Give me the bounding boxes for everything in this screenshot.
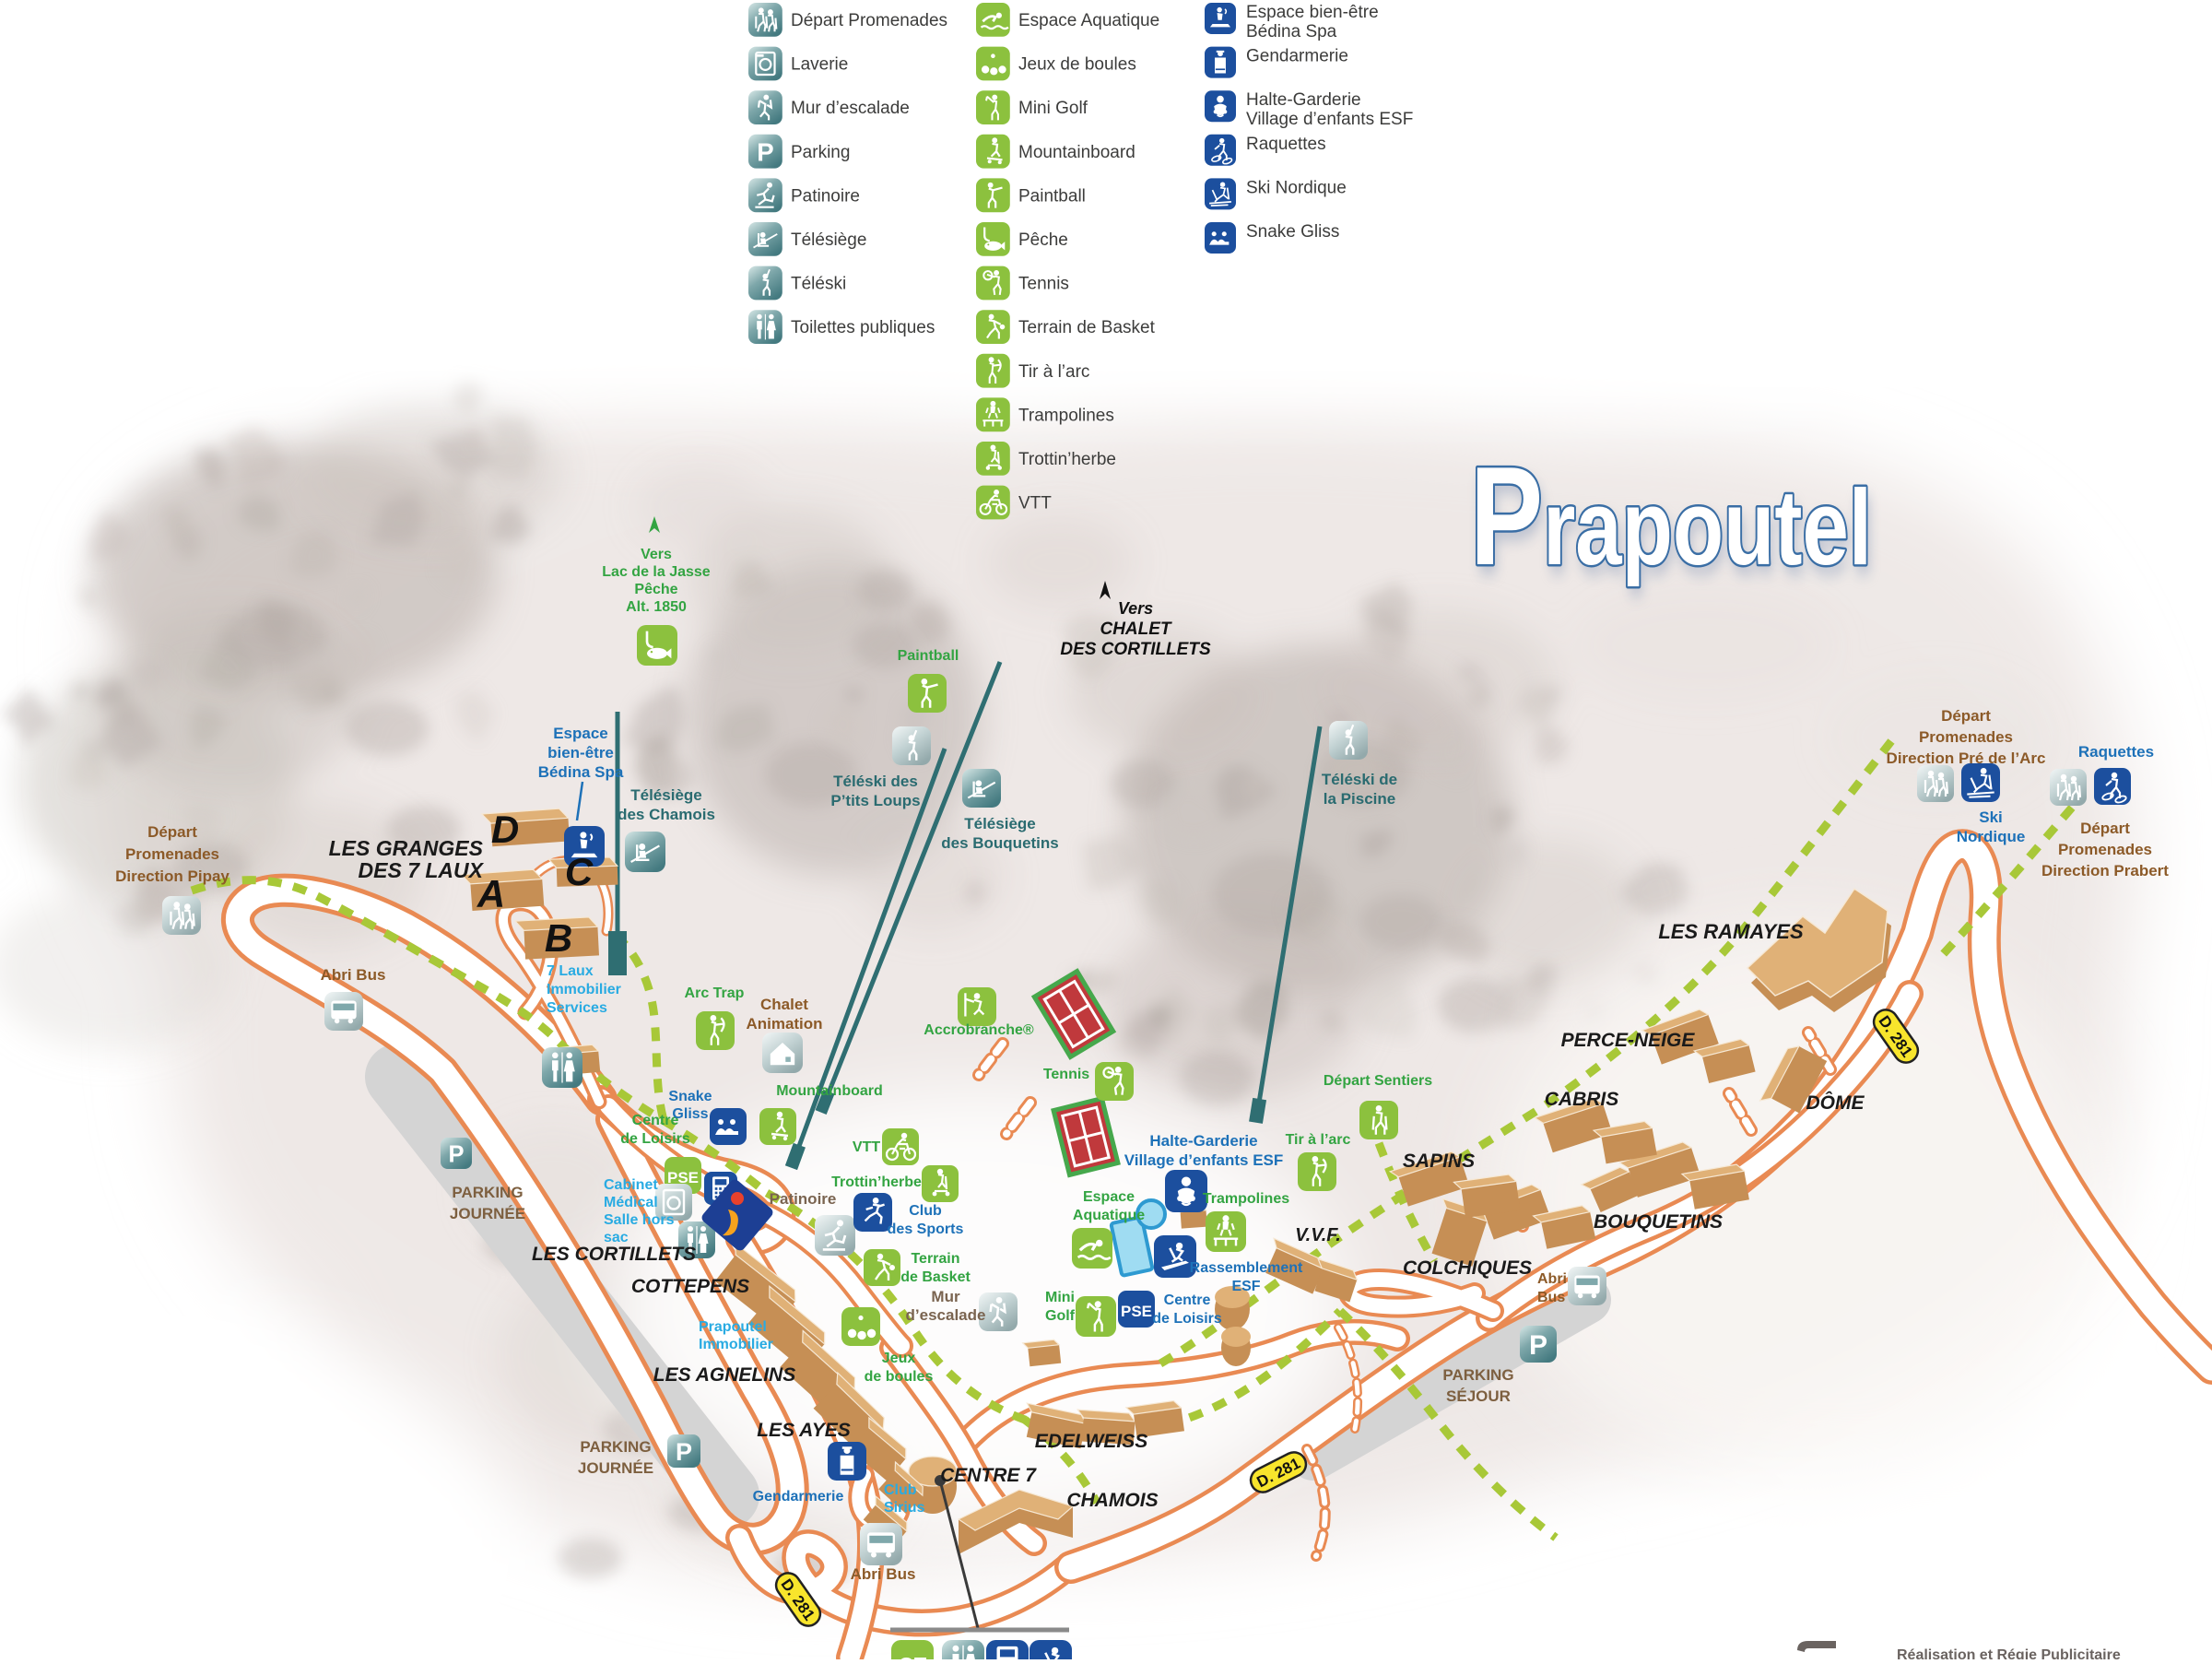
svg-text:Mountainboard: Mountainboard: [776, 1083, 883, 1099]
svg-text:Départ Sentiers: Départ Sentiers: [1324, 1073, 1432, 1089]
svg-text:Trottin’herbe: Trottin’herbe: [831, 1174, 922, 1190]
svg-text:Arc Trap: Arc Trap: [685, 985, 745, 1001]
svg-text:Télésiège: Télésiège: [964, 815, 1036, 832]
svg-text:Terrain de Basket: Terrain de Basket: [1018, 318, 1156, 337]
svg-text:Direction Prabert: Direction Prabert: [2041, 862, 2169, 879]
svg-text:Ski: Ski: [1979, 808, 2003, 826]
svg-text:CHALET: CHALET: [1100, 620, 1171, 639]
svg-text:C: C: [565, 850, 594, 893]
svg-text:Toilettes publiques: Toilettes publiques: [791, 318, 935, 337]
svg-text:Médical: Médical: [604, 1195, 658, 1210]
svg-text:PARKING: PARKING: [1442, 1366, 1513, 1384]
svg-text:Espace: Espace: [1083, 1189, 1135, 1205]
svg-text:Tennis: Tennis: [1043, 1067, 1089, 1082]
svg-text:Départ: Départ: [2080, 820, 2130, 837]
svg-text:Tennis: Tennis: [1018, 275, 1069, 294]
svg-text:Bédina Spa: Bédina Spa: [538, 763, 624, 781]
svg-text:PERCE-NEIGE: PERCE-NEIGE: [1561, 1030, 1696, 1051]
svg-text:DÔME: DÔME: [1806, 1092, 1865, 1114]
svg-text:Espace: Espace: [553, 725, 608, 742]
svg-text:des Bouquetins: des Bouquetins: [941, 834, 1059, 852]
svg-text:Pêche: Pêche: [634, 582, 677, 597]
svg-text:de Basket: de Basket: [900, 1269, 971, 1285]
svg-text:Sirius: Sirius: [884, 1500, 925, 1516]
svg-text:Club: Club: [909, 1203, 942, 1219]
svg-text:Télésiège: Télésiège: [630, 786, 702, 804]
svg-text:Mur: Mur: [931, 1288, 960, 1305]
svg-text:COLCHIQUES: COLCHIQUES: [1403, 1257, 1532, 1279]
svg-text:Promenades: Promenades: [2058, 841, 2152, 858]
svg-text:des Sports: des Sports: [888, 1221, 964, 1237]
svg-text:Ski Nordique: Ski Nordique: [1246, 178, 1347, 197]
svg-text:COTTEPENS: COTTEPENS: [631, 1276, 749, 1297]
svg-text:Abri Bus: Abri Bus: [321, 966, 386, 984]
svg-text:Animation: Animation: [746, 1015, 822, 1033]
svg-text:la Piscine: la Piscine: [1324, 790, 1395, 808]
svg-text:Vers: Vers: [641, 547, 672, 562]
svg-text:Direction Pré de l’Arc: Direction Pré de l’Arc: [1887, 749, 2046, 767]
svg-text:PARKING: PARKING: [580, 1438, 651, 1456]
svg-text:Aquatique: Aquatique: [1073, 1208, 1145, 1223]
svg-text:Téléski des: Téléski des: [833, 773, 918, 790]
svg-text:Vers: Vers: [1118, 599, 1153, 618]
svg-text:Téléski: Téléski: [791, 275, 846, 294]
svg-text:7 Laux: 7 Laux: [547, 963, 594, 979]
svg-text:GT: GT: [899, 1654, 927, 1660]
svg-text:Trottin’herbe: Trottin’herbe: [1018, 450, 1116, 469]
svg-text:LES GRANGES: LES GRANGES: [329, 836, 484, 860]
svg-text:Téléski de: Téléski de: [1322, 771, 1397, 788]
svg-text:Espace Aquatique: Espace Aquatique: [1018, 11, 1159, 30]
svg-text:DES 7 LAUX: DES 7 LAUX: [359, 858, 485, 882]
svg-text:Raquettes: Raquettes: [2078, 743, 2154, 761]
svg-text:SAPINS: SAPINS: [1403, 1151, 1475, 1172]
svg-text:DES CORTILLETS: DES CORTILLETS: [1060, 640, 1211, 659]
svg-text:LES CORTILLETS: LES CORTILLETS: [532, 1244, 696, 1265]
svg-text:d’escalade: d’escalade: [906, 1306, 986, 1324]
svg-text:Jeux de boules: Jeux de boules: [1018, 55, 1136, 75]
svg-text:Bédina Spa: Bédina Spa: [1246, 22, 1337, 41]
svg-text:Départ Promenades: Départ Promenades: [791, 11, 947, 30]
svg-text:Patinoire: Patinoire: [791, 186, 860, 206]
svg-text:JOURNÉE: JOURNÉE: [450, 1205, 525, 1222]
svg-text:LES RAMAYES: LES RAMAYES: [1658, 920, 1804, 943]
svg-text:Tir à l’arc: Tir à l’arc: [1286, 1132, 1351, 1148]
svg-text:ESF: ESF: [1231, 1279, 1260, 1294]
svg-text:CENTRE 7: CENTRE 7: [940, 1465, 1037, 1486]
svg-text:EDELWEISS: EDELWEISS: [1035, 1431, 1148, 1452]
svg-text:Village d’enfants ESF: Village d’enfants ESF: [1246, 110, 1413, 129]
svg-text:V.V.F.: V.V.F.: [1295, 1225, 1341, 1245]
svg-text:Patinoire: Patinoire: [770, 1190, 837, 1208]
svg-text:Services: Services: [547, 1000, 607, 1016]
svg-text:Terrain: Terrain: [911, 1251, 959, 1267]
svg-text:Trampolines: Trampolines: [1203, 1191, 1289, 1207]
svg-text:Paintball: Paintball: [898, 648, 959, 664]
svg-text:VTT: VTT: [1018, 494, 1052, 513]
svg-text:Snake Gliss: Snake Gliss: [1246, 222, 1339, 242]
svg-text:Jeux: Jeux: [882, 1351, 916, 1366]
svg-text:Immobilier: Immobilier: [699, 1337, 773, 1352]
svg-text:Prapoutel: Prapoutel: [699, 1319, 767, 1335]
svg-text:Départ: Départ: [147, 823, 197, 841]
svg-text:Promenades: Promenades: [1919, 728, 2013, 746]
svg-text:SÉJOUR: SÉJOUR: [1446, 1387, 1511, 1405]
svg-text:Départ: Départ: [1941, 707, 1991, 725]
svg-text:Mini Golf: Mini Golf: [1018, 99, 1088, 118]
svg-text:D: D: [491, 808, 519, 851]
svg-text:Immobilier: Immobilier: [547, 982, 621, 997]
svg-text:CHAMOIS: CHAMOIS: [1066, 1490, 1158, 1511]
svg-text:Chalet: Chalet: [760, 996, 808, 1013]
svg-text:Paintball: Paintball: [1018, 186, 1086, 206]
svg-text:de Loisirs: de Loisirs: [620, 1131, 690, 1147]
svg-text:Salle hors: Salle hors: [604, 1212, 675, 1228]
svg-text:Gendarmerie: Gendarmerie: [1246, 47, 1348, 66]
svg-text:Village d’enfants ESF: Village d’enfants ESF: [1124, 1151, 1284, 1169]
svg-text:Trampolines: Trampolines: [1018, 406, 1114, 425]
svg-text:VTT: VTT: [853, 1139, 880, 1155]
svg-text:Alt. 1850: Alt. 1850: [626, 599, 687, 615]
svg-text:P’tits Loups: P’tits Loups: [830, 792, 920, 809]
svg-text:Rassemblement: Rassemblement: [1190, 1260, 1303, 1276]
svg-text:Direction Pipay: Direction Pipay: [115, 867, 229, 885]
svg-text:Snake: Snake: [668, 1089, 712, 1104]
svg-text:Parking: Parking: [791, 143, 850, 162]
svg-text:PARKING: PARKING: [452, 1184, 523, 1201]
svg-text:Réalisation et Régie Publicita: Réalisation et Régie Publicitaire: [1897, 1647, 2121, 1659]
svg-text:Mur d’escalade: Mur d’escalade: [791, 99, 910, 118]
svg-text:LES AYES: LES AYES: [757, 1420, 851, 1441]
svg-text:Promenades: Promenades: [125, 845, 219, 863]
svg-text:Halte-Garderie: Halte-Garderie: [1246, 90, 1361, 110]
svg-text:Accrobranche®: Accrobranche®: [924, 1022, 1034, 1038]
svg-text:Gliss: Gliss: [672, 1106, 708, 1122]
svg-text:Nordique: Nordique: [1957, 828, 2026, 845]
svg-text:des Chamois: des Chamois: [618, 806, 715, 823]
svg-text:bien-être: bien-être: [547, 744, 614, 761]
svg-text:Halte-Garderie: Halte-Garderie: [1149, 1132, 1257, 1150]
svg-text:de Loisirs: de Loisirs: [1152, 1311, 1222, 1327]
svg-text:Pêche: Pêche: [1018, 230, 1068, 250]
svg-text:Abri: Abri: [1537, 1271, 1567, 1287]
svg-text:Gendarmerie: Gendarmerie: [753, 1489, 844, 1505]
svg-text:Raquettes: Raquettes: [1246, 135, 1326, 154]
svg-text:Mountainboard: Mountainboard: [1018, 143, 1135, 162]
svg-text:B: B: [545, 916, 572, 960]
svg-text:Lac de la Jasse: Lac de la Jasse: [602, 564, 711, 580]
svg-text:Laverie: Laverie: [791, 55, 848, 75]
svg-text:JOURNÉE: JOURNÉE: [578, 1459, 653, 1477]
svg-text:Centre: Centre: [1164, 1292, 1211, 1308]
svg-text:Club: Club: [884, 1482, 917, 1498]
svg-text:Cabinet: Cabinet: [604, 1177, 658, 1193]
svg-text:A: A: [477, 872, 505, 915]
svg-text:CABRIS: CABRIS: [1545, 1089, 1619, 1110]
svg-text:de boules: de boules: [865, 1369, 934, 1385]
svg-text:Bus: Bus: [1537, 1290, 1565, 1305]
svg-text:Espace bien-être: Espace bien-être: [1246, 3, 1379, 22]
svg-text:BOUQUETINS: BOUQUETINS: [1594, 1211, 1723, 1233]
svg-text:LES AGNELINS: LES AGNELINS: [653, 1364, 795, 1386]
svg-text:Abri Bus: Abri Bus: [851, 1565, 916, 1583]
svg-text:Tir à l’arc: Tir à l’arc: [1018, 362, 1089, 382]
svg-text:Télésiège: Télésiège: [791, 230, 866, 250]
svg-text:Golf: Golf: [1045, 1308, 1076, 1324]
svg-text:Mini: Mini: [1045, 1290, 1075, 1305]
